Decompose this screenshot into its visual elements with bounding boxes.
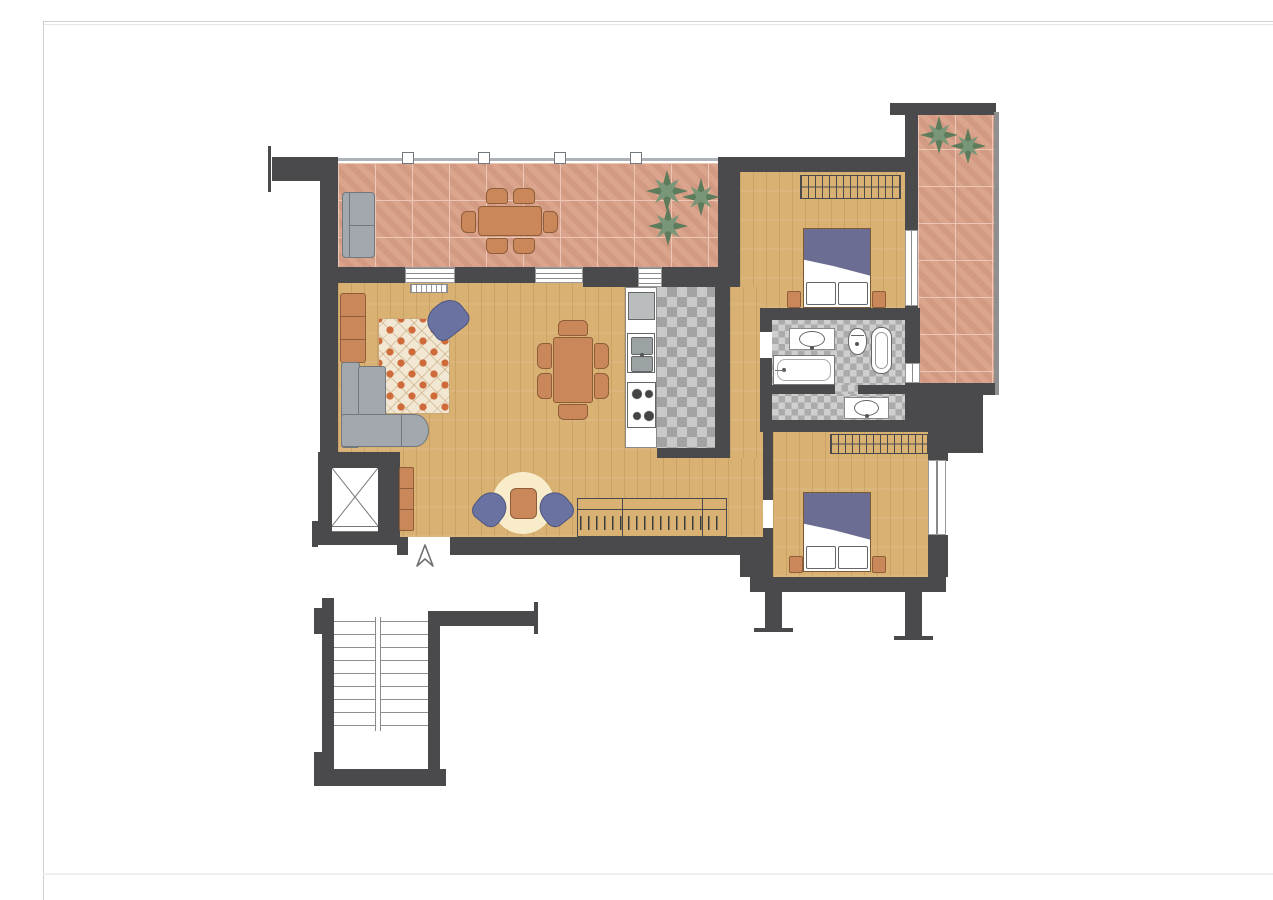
bathroom-window xyxy=(905,363,920,383)
wall-segment xyxy=(760,308,920,320)
wall-segment xyxy=(715,287,730,458)
elevator-x-icon xyxy=(332,468,378,526)
railing-post xyxy=(478,152,490,164)
wall-section-cap xyxy=(754,628,793,632)
wall-segment xyxy=(905,115,918,157)
wall-section-cap xyxy=(894,636,933,640)
corner-sofa-seat xyxy=(341,414,405,447)
nightstand xyxy=(789,556,803,573)
wall-segment xyxy=(750,577,946,592)
stove xyxy=(627,382,656,428)
terrace-right-floor xyxy=(918,112,994,386)
stair-handrail xyxy=(375,617,381,731)
wall-segment xyxy=(455,267,535,283)
bedroom-top-window xyxy=(905,230,918,306)
radiator xyxy=(410,284,448,293)
wall-segment xyxy=(928,395,983,453)
wall-stub xyxy=(314,608,322,634)
elevator-door-line xyxy=(332,526,378,532)
wall-segment xyxy=(905,395,928,420)
nightstand xyxy=(872,556,886,573)
wall-section-cap xyxy=(268,146,271,192)
dining-chair xyxy=(558,320,588,336)
coffee-table xyxy=(510,488,537,519)
washbasin xyxy=(799,331,825,347)
kitchen-window xyxy=(638,267,662,287)
double-bed xyxy=(803,492,871,572)
floor-plan-canvas xyxy=(0,0,1273,900)
nightstand xyxy=(787,291,801,308)
window xyxy=(405,267,455,283)
page-frame-top-inner xyxy=(43,24,1273,25)
page-frame-top xyxy=(43,21,1273,22)
nightstand xyxy=(872,291,886,308)
stair-wall xyxy=(322,598,334,785)
fridge xyxy=(628,292,655,320)
corner-sofa-chaise xyxy=(401,414,429,447)
wall-segment xyxy=(905,320,920,363)
wall-segment xyxy=(905,172,918,230)
wall-segment xyxy=(763,432,773,500)
wall-segment xyxy=(760,308,772,430)
wall-segment xyxy=(397,537,773,555)
bathtub xyxy=(773,355,835,385)
bedroom-bottom-window xyxy=(928,460,946,535)
wall-segment xyxy=(657,448,730,458)
washbasin-2-drain xyxy=(865,414,869,418)
bathroom-divider-opening xyxy=(835,385,858,394)
dining-chair xyxy=(513,188,535,204)
wardrobe xyxy=(800,175,901,199)
wall-bench xyxy=(340,293,366,363)
dining-chair xyxy=(513,238,535,254)
dining-chair xyxy=(537,373,552,399)
wall-stub xyxy=(765,592,782,630)
bidet xyxy=(871,327,892,374)
page-frame-left xyxy=(43,21,44,900)
sideboard-with-hangers xyxy=(577,498,727,537)
kitchen-floor xyxy=(657,287,715,448)
wall-segment xyxy=(760,420,928,432)
wall-segment xyxy=(890,103,996,115)
dining-chair xyxy=(461,211,476,233)
entry-cabinet xyxy=(399,467,414,531)
wall-segment xyxy=(320,157,338,467)
wall-segment xyxy=(740,537,773,577)
stair-wall xyxy=(428,611,440,785)
kitchen-sink xyxy=(627,333,655,373)
stair-wall xyxy=(314,769,446,786)
wall-segment xyxy=(662,267,718,287)
stairs xyxy=(334,621,428,731)
double-bed xyxy=(803,228,871,308)
wall-stub xyxy=(905,592,922,638)
railing-post xyxy=(402,152,414,164)
wall-segment xyxy=(905,383,995,395)
wall-segment xyxy=(718,172,740,287)
outdoor-sofa xyxy=(342,192,375,258)
wardrobe xyxy=(830,434,928,454)
railing-post xyxy=(554,152,566,164)
dining-chair xyxy=(543,211,558,233)
dining-chair xyxy=(594,343,609,369)
railing-post xyxy=(630,152,642,164)
page-frame-bottom xyxy=(43,873,1273,875)
dining-chair xyxy=(594,373,609,399)
wall-segment xyxy=(338,267,405,283)
toilet xyxy=(848,328,867,355)
dining-chair xyxy=(558,404,588,420)
wall-segment xyxy=(928,535,948,577)
dining-chair xyxy=(537,343,552,369)
bathroom-door-opening xyxy=(760,332,772,358)
terrace-railing xyxy=(338,158,718,161)
wall-segment xyxy=(583,267,638,287)
wall-stub xyxy=(312,521,318,547)
washbasin-drain xyxy=(810,346,814,350)
dining-chair xyxy=(486,188,508,204)
entrance-arrow-icon xyxy=(413,542,437,568)
wall-segment xyxy=(440,611,534,626)
wall-section-cap xyxy=(534,602,538,634)
terrace-right-edge xyxy=(994,112,999,395)
wall-segment xyxy=(718,157,918,172)
dining-table xyxy=(553,337,593,403)
terrace-door xyxy=(535,267,583,283)
dining-chair xyxy=(486,238,508,254)
outdoor-dining-table xyxy=(478,206,542,236)
